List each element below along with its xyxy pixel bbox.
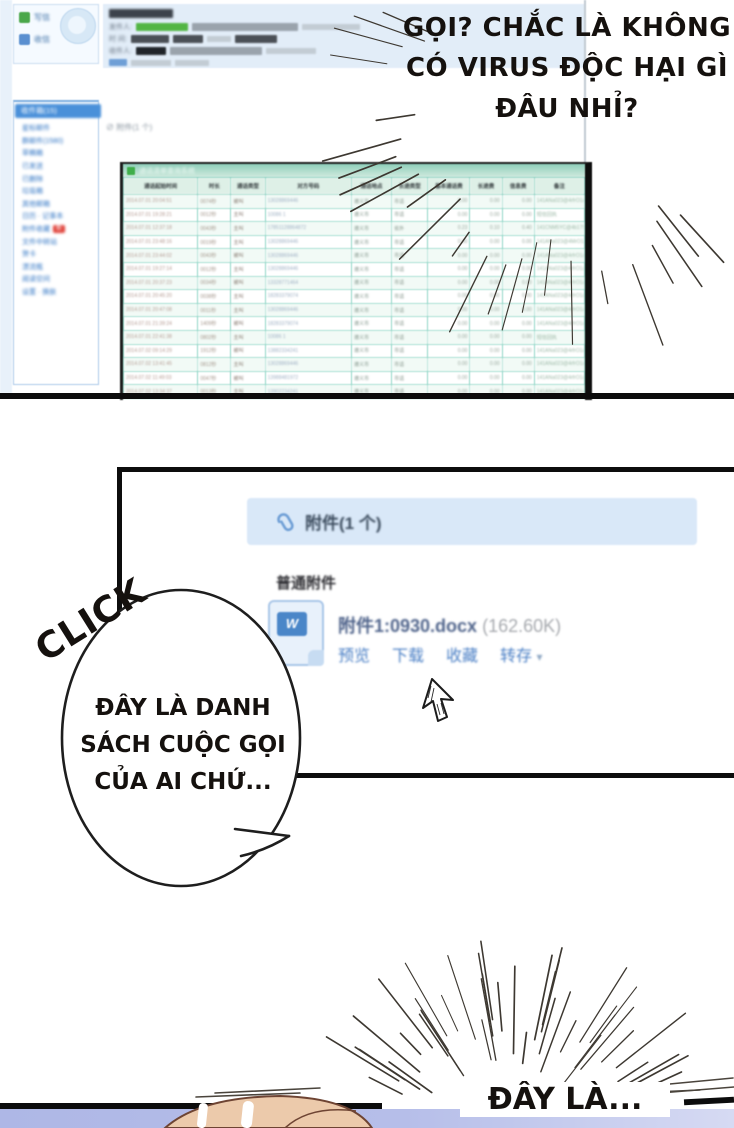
table-cell: 遵义市 [351,303,391,317]
table-row: 2014.07.02 13:41:450812秒主叫13028869446遵义市… [124,358,585,372]
speech-line: SÁCH CUỘC GỌI [78,727,288,764]
sidebar-item[interactable]: 设置 · 换肤 [14,286,98,299]
table-cell: 2014.07.01 21:39:24 [124,317,198,331]
table-cell: 17851128864872 [265,222,351,236]
time-redaction-4 [235,35,277,43]
table-cell: 被叫 [231,317,265,331]
speech-line: GỌI? CHẮC LÀ KHÔNG [400,8,734,48]
table-cell: 市话 [392,276,428,290]
time-label: 时 间: [109,34,127,44]
call-log-column-header: 长途类型 [392,178,428,195]
table-cell: 1912秒 [198,344,231,358]
to-redaction-black [136,47,166,55]
table-cell: 13028869446 [265,235,351,249]
table-cell: 省外 [392,222,428,236]
table-cell: 13028869446 [265,195,351,209]
table-cell: 0.00 [502,195,534,209]
sidebar-item-list: 星标邮件群邮件(1580)草稿箱已发送已删除垃圾箱其他邮箱日历 · 记事本附件收… [14,122,98,298]
call-log-column-header: 通话起始时间 [124,178,198,195]
compose-label: 写信 [34,12,50,23]
time-redaction-3 [207,36,231,42]
call-log-window: 通话清单查询系统 通话起始时间时长通话类型对方号码通话地点长途类型基本通话费长途… [120,162,592,400]
table-cell: 1409秒 [198,317,231,331]
sidebar-item[interactable]: 阅读空间 [14,273,98,286]
table-row: 2014.07.01 21:39:241409秒被叫18283379074遵义市… [124,317,585,331]
file-name-row: 附件1:0930.docx (162.60K) [338,612,561,638]
table-row: 2014.07.01 20:45:200038秒主叫18283379074遵义市… [124,290,585,304]
table-cell: 0.00 [502,208,534,222]
table-cell: 0.00 [470,290,502,304]
table-cell: 2014.07.02 09:14:29 [124,344,198,358]
table-cell: 10086 1 [265,330,351,344]
table-cell: 短信回执 [534,208,584,222]
sidebar-item[interactable]: 草稿箱 [14,147,98,160]
time-redaction-2 [173,35,203,43]
table-cell: 0.00 [428,276,470,290]
table-cell: 主叫 [231,208,265,222]
table-cell: 被叫 [231,195,265,209]
table-cell: 市话 [392,262,428,276]
table-cell: 18283379074 [265,290,351,304]
speech-line: CỦA AI CHỨ... [78,764,288,801]
table-cell: 141ANa023@4rfrO1a [534,276,584,290]
table-cell: 0034秒 [198,276,231,290]
inbox-button[interactable]: 收信 [19,31,50,47]
table-cell: 0.00 [428,249,470,263]
attachment-header-label: 附件(1 个) [305,509,382,534]
attachment-header-bar: 附件(1 个) [247,498,697,545]
table-cell: 141ANa023@4MrO1a [534,235,584,249]
table-row: 2014.07.02 09:14:291912秒被叫13882334241遵义市… [124,344,585,358]
speech-line: ĐÂU NHỈ? [400,89,734,129]
table-cell: 市话 [392,208,428,222]
table-cell: 被叫 [231,344,265,358]
table-cell: 0802秒 [198,330,231,344]
download-link[interactable]: 下载 [392,642,424,666]
table-cell: 0.00 [470,358,502,372]
table-cell: 遵义市 [351,276,391,290]
table-cell: 遵义市 [351,208,391,222]
table-cell: 0.00 [428,208,470,222]
table-cell: 141ANa023@4rfrO1a [534,195,584,209]
to-redaction-gray [170,47,262,55]
table-cell: 0.00 [470,317,502,331]
table-cell: 被叫 [231,249,265,263]
table-cell: 市话 [392,249,428,263]
links-row [109,58,209,67]
table-cell: 13028869446 [265,303,351,317]
speech-bubble-top: GỌI? CHẮC LÀ KHÔNG CÓ VIRUS ĐỘC HẠI GÌ Đ… [400,8,734,129]
speech-line: CÓ VIRUS ĐỘC HẠI GÌ [400,48,734,88]
paperclip-icon [270,506,299,537]
table-cell: 0.00 [428,235,470,249]
table-cell: 0.00 [470,195,502,209]
table-cell: 0.00 [428,371,470,385]
to-redaction-dim [266,48,316,54]
table-cell: 2014.07.01 19:28:21 [124,208,198,222]
table-cell: 13988481972 [265,371,351,385]
table-cell: 0011秒 [198,303,231,317]
time-row: 时 间: [109,34,277,43]
table-cell: 遵义市 [351,344,391,358]
table-cell: 141ANa023@4rfrO1a [534,290,584,304]
sidebar-item[interactable]: 垃圾箱 [14,185,98,198]
table-row: 2014.07.01 20:47:080011秒主叫13028869446遵义市… [124,303,585,317]
table-row: 2014.07.01 12:37:180043秒主叫17851128864872… [124,222,585,236]
sidebar-item[interactable]: 文件中转站 [14,235,98,248]
table-cell: 141ANa023@4rfrO1a [534,303,584,317]
table-cell: 短信回执 [534,330,584,344]
mail-sidebar: 收件箱(15) 星标邮件群邮件(1580)草稿箱已发送已删除垃圾箱其他邮箱日历 … [13,100,99,385]
table-cell: 2014.07.02 13:41:45 [124,358,198,372]
table-cell: 13028869446 [265,262,351,276]
table-cell: 0.00 [470,249,502,263]
call-log-column-header: 基本通话费 [428,178,470,195]
table-cell: 2014.07.01 23:44:02 [124,249,198,263]
table-cell: 遵义市 [351,371,391,385]
table-cell: 0.00 [470,371,502,385]
table-cell: 141ANa023@4rfrO1a [534,317,584,331]
to-label: 收件人: [109,46,132,56]
table-cell: 0.00 [428,303,470,317]
favorite-link[interactable]: 收藏 [446,642,478,666]
table-cell: 0.00 [428,317,470,331]
table-cell: 0019秒 [198,235,231,249]
from-redaction-gray [192,23,298,31]
table-row: 2014.07.01 22:41:380802秒主叫10086 1遵义市市话0.… [124,330,585,344]
sidebar-item[interactable]: 日历 · 记事本 [14,210,98,223]
table-cell: 0.00 [502,317,534,331]
time-redaction-1 [131,35,169,43]
table-cell: 13028869446 [265,249,351,263]
table-cell: 0.00 [428,330,470,344]
table-cell: 2014.07.02 11:49:03 [124,371,198,385]
table-cell: 2014.07.01 23:48:16 [124,235,198,249]
sidebar-item[interactable]: 贺卡 [14,248,98,261]
call-log-column-header: 通话地点 [351,178,391,195]
call-log-table: 通话起始时间时长通话类型对方号码通话地点长途类型基本通话费长途费信息费备注 20… [123,177,585,399]
table-cell: 市话 [392,195,428,209]
sidebar-item[interactable]: 其他邮箱 [14,198,98,211]
sidebar-item[interactable]: 漂流瓶 [14,261,98,274]
table-cell: 0.00 [502,358,534,372]
mail-left-strip [0,0,12,393]
table-cell: 0.00 [470,208,502,222]
table-cell: 141ANa023@4rfrO1a [534,358,584,372]
table-cell: 0047秒 [198,371,231,385]
from-redaction-dim [302,24,360,30]
table-cell: 141CNM5YC@4b17SY [534,222,584,236]
compose-button[interactable]: 写信 [19,9,50,25]
panel-border-bottom-1 [0,393,734,399]
file-name[interactable]: 附件1:0930.docx [338,616,477,636]
table-cell: 市话 [392,317,428,331]
call-log-column-header: 时长 [198,178,231,195]
table-row: 2014.07.01 19:27:140012秒主叫13028869446遵义市… [124,262,585,276]
table-cell: 0.00 [470,303,502,317]
table-cell: 市话 [392,235,428,249]
table-cell: 2014.07.01 12:37:18 [124,222,198,236]
table-row: 2014.07.01 23:48:160019秒主叫13028869446遵义市… [124,235,585,249]
table-cell: 0.00 [502,235,534,249]
mail-logo [60,8,96,44]
save-to-drive-link[interactable]: 转存 ▾ [500,642,543,666]
dropdown-caret-icon: ▾ [537,650,543,664]
table-cell: 0.00 [428,344,470,358]
call-log-column-header: 通话类型 [231,178,265,195]
subject-redaction-bar [109,9,173,18]
table-cell: 0.00 [502,344,534,358]
call-log-column-header: 备注 [534,178,584,195]
table-cell: 市话 [392,330,428,344]
table-cell: 0.00 [470,276,502,290]
table-cell: 0043秒 [198,249,231,263]
table-cell: 141ANa023@4rfrO1a [534,344,584,358]
table-row: 2014.07.01 20:04:510074秒被叫13028869446遵义市… [124,195,585,209]
table-cell: 被叫 [231,371,265,385]
table-cell: 10086 1 [265,208,351,222]
table-cell: 遵义市 [351,262,391,276]
table-cell: 遵义市 [351,330,391,344]
mail-attachment-note: ∅ 附件(1 个) [106,122,152,133]
table-cell: 0.00 [502,371,534,385]
compose-icon [19,12,30,23]
cursor-arrow-icon [420,678,466,730]
table-row: 2014.07.01 19:28:210012秒主叫10086 1遵义市市话0.… [124,208,585,222]
table-cell: 遵义市 [351,358,391,372]
table-cell: 0012秒 [198,208,231,222]
sidebar-item[interactable]: 星标邮件 [14,122,98,135]
table-cell: 0.00 [470,330,502,344]
speech-line: ĐÂY LÀ DANH [78,690,288,727]
table-cell: 2014.07.01 20:45:20 [124,290,198,304]
from-label: 发件人: [109,22,132,32]
link-redaction-dim2 [175,60,209,66]
inbox-icon [19,34,30,45]
table-cell: 市话 [392,303,428,317]
table-cell: 0.00 [470,262,502,276]
preview-link[interactable]: 预览 [338,642,370,666]
from-row: 发件人: [109,22,360,31]
call-log-column-header: 信息费 [502,178,534,195]
table-row: 2014.07.01 23:44:020043秒被叫13028869446遵义市… [124,249,585,263]
table-cell: 2014.07.01 22:41:38 [124,330,198,344]
table-cell: 0.00 [502,262,534,276]
table-cell: 市话 [392,290,428,304]
table-cell: 市话 [392,371,428,385]
table-cell: 0.00 [470,344,502,358]
to-row: 收件人: [109,46,316,55]
table-cell: 2014.07.01 20:47:08 [124,303,198,317]
link-redaction-dim1 [131,60,171,66]
table-cell: 141ANa023@4rfrO1a [534,262,584,276]
table-cell: 遵义市 [351,195,391,209]
call-log-titlebar: 通话清单查询系统 [123,164,585,177]
table-cell: 0.00 [502,249,534,263]
table-cell: 遵义市 [351,249,391,263]
table-cell: 0.00 [502,290,534,304]
table-row: 2014.07.01 20:37:230034秒被叫13328771464遵义市… [124,276,585,290]
from-redaction-green [136,23,188,31]
table-row: 2014.07.02 11:49:030047秒被叫13988481972遵义市… [124,371,585,385]
table-cell: 0.00 [470,235,502,249]
table-cell: 遵义市 [351,317,391,331]
table-cell: 0074秒 [198,195,231,209]
inbox-label: 收信 [34,34,50,45]
call-log-column-header: 长途费 [470,178,502,195]
table-cell: 0812秒 [198,358,231,372]
table-cell: 0.00 [428,290,470,304]
table-cell: 主叫 [231,235,265,249]
call-log-window-icon [127,167,135,175]
table-cell: 遵义市 [351,235,391,249]
call-log-header-row: 通话起始时间时长通话类型对方号码通话地点长途类型基本通话费长途费信息费备注 [124,178,585,195]
table-cell: 2014.07.01 20:37:23 [124,276,198,290]
table-cell: 18283379074 [265,317,351,331]
table-cell: 主叫 [231,222,265,236]
call-log-column-header: 对方号码 [265,178,351,195]
table-cell: 主叫 [231,303,265,317]
sidebar-item-inbox-selected[interactable]: 收件箱(15) [15,104,101,118]
table-cell: 遵义市 [351,290,391,304]
sidebar-item[interactable]: 已发送 [14,160,98,173]
table-cell: 13328771464 [265,276,351,290]
link-redaction-blue[interactable] [109,59,127,66]
table-cell: 141ANa023@4rfrO1a [534,249,584,263]
table-cell: 0.10 [470,222,502,236]
table-cell: 0.00 [502,330,534,344]
table-cell: 13882334241 [265,344,351,358]
table-cell: 0.00 [428,358,470,372]
table-cell: 0038秒 [198,290,231,304]
table-cell: 13028869446 [265,358,351,372]
table-cell: 0.00 [428,262,470,276]
table-cell: 主叫 [231,290,265,304]
call-log-window-title: 通话清单查询系统 [139,166,195,176]
table-cell: 0.00 [502,303,534,317]
table-cell: 0.23 [428,222,470,236]
table-cell: 遵义市 [351,222,391,236]
character-head [0,1095,734,1128]
table-cell: 市话 [392,358,428,372]
table-cell: 市话 [392,344,428,358]
table-cell: 0043秒 [198,222,231,236]
file-action-links: 预览 下载 收藏 转存 ▾ [338,642,543,666]
speech-bubble-mid-text: ĐÂY LÀ DANH SÁCH CUỘC GỌI CỦA AI CHỨ... [78,690,288,800]
sidebar-item[interactable]: 已删除 [14,172,98,185]
table-cell: 2014.07.01 19:27:14 [124,262,198,276]
table-cell: 0012秒 [198,262,231,276]
sidebar-badge: 新 [53,225,65,233]
file-size: (162.60K) [482,616,561,636]
table-cell: 主叫 [231,330,265,344]
table-cell: 主叫 [231,358,265,372]
sidebar-item[interactable]: 附件收藏新 [14,223,98,236]
table-cell: 2014.07.01 20:04:51 [124,195,198,209]
table-cell: 主叫 [231,262,265,276]
table-cell: 0.40 [502,222,534,236]
table-cell: 141ANa023@4rfrO1a [534,371,584,385]
table-cell: 被叫 [231,276,265,290]
sidebar-item[interactable]: 群邮件(1580) [14,135,98,148]
table-cell: 0.00 [428,195,470,209]
table-cell: 0.00 [502,276,534,290]
